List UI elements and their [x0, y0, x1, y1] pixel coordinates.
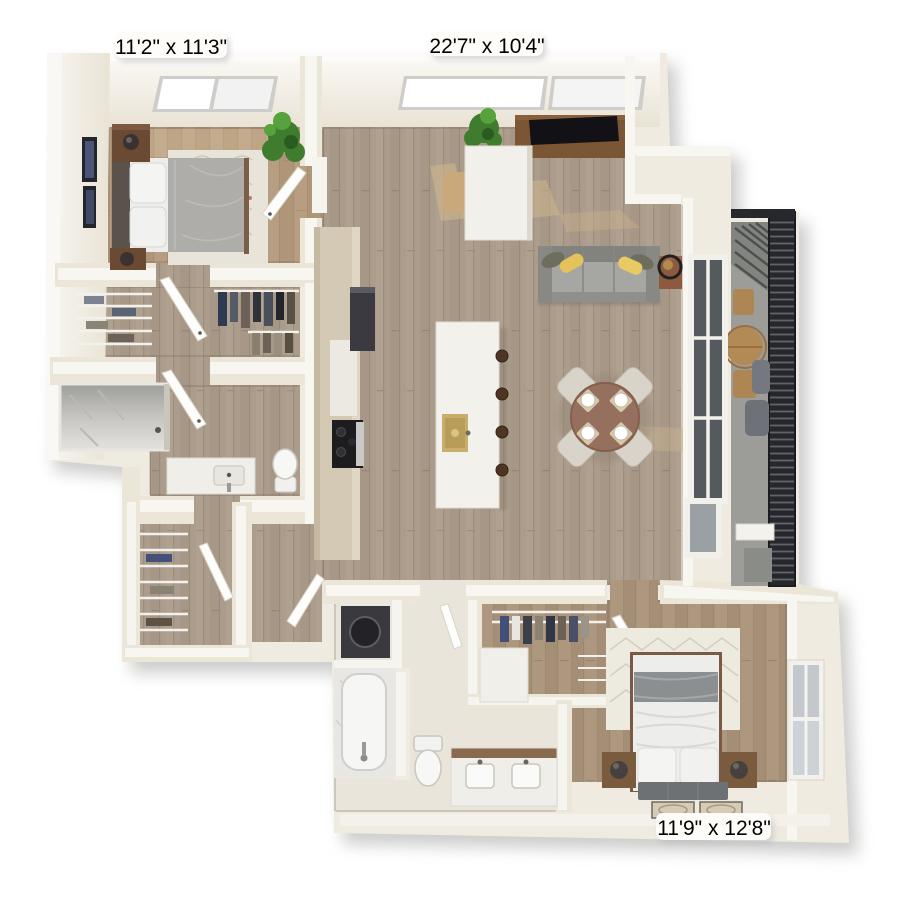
svg-text:22'7" x 10'4": 22'7" x 10'4": [429, 35, 544, 58]
svg-text:11'2" x 11'3": 11'2" x 11'3": [115, 36, 227, 59]
svg-text:11'9" x 12'8": 11'9" x 12'8": [657, 817, 771, 840]
